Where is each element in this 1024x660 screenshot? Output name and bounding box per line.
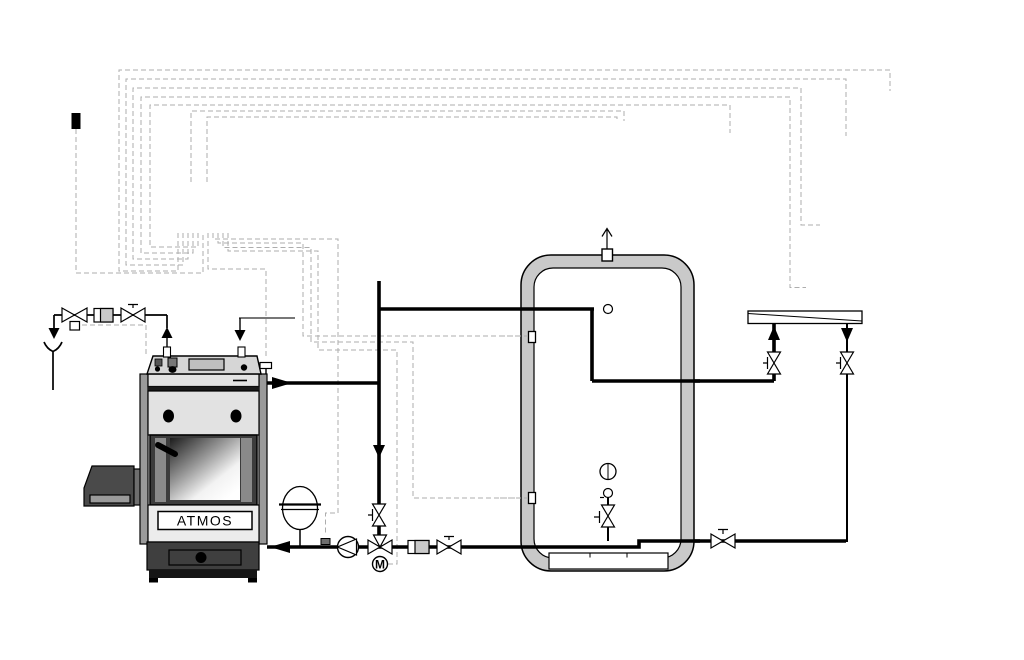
svg-text:M: M — [375, 558, 385, 572]
svg-text:ATMOS: ATMOS — [177, 513, 233, 529]
